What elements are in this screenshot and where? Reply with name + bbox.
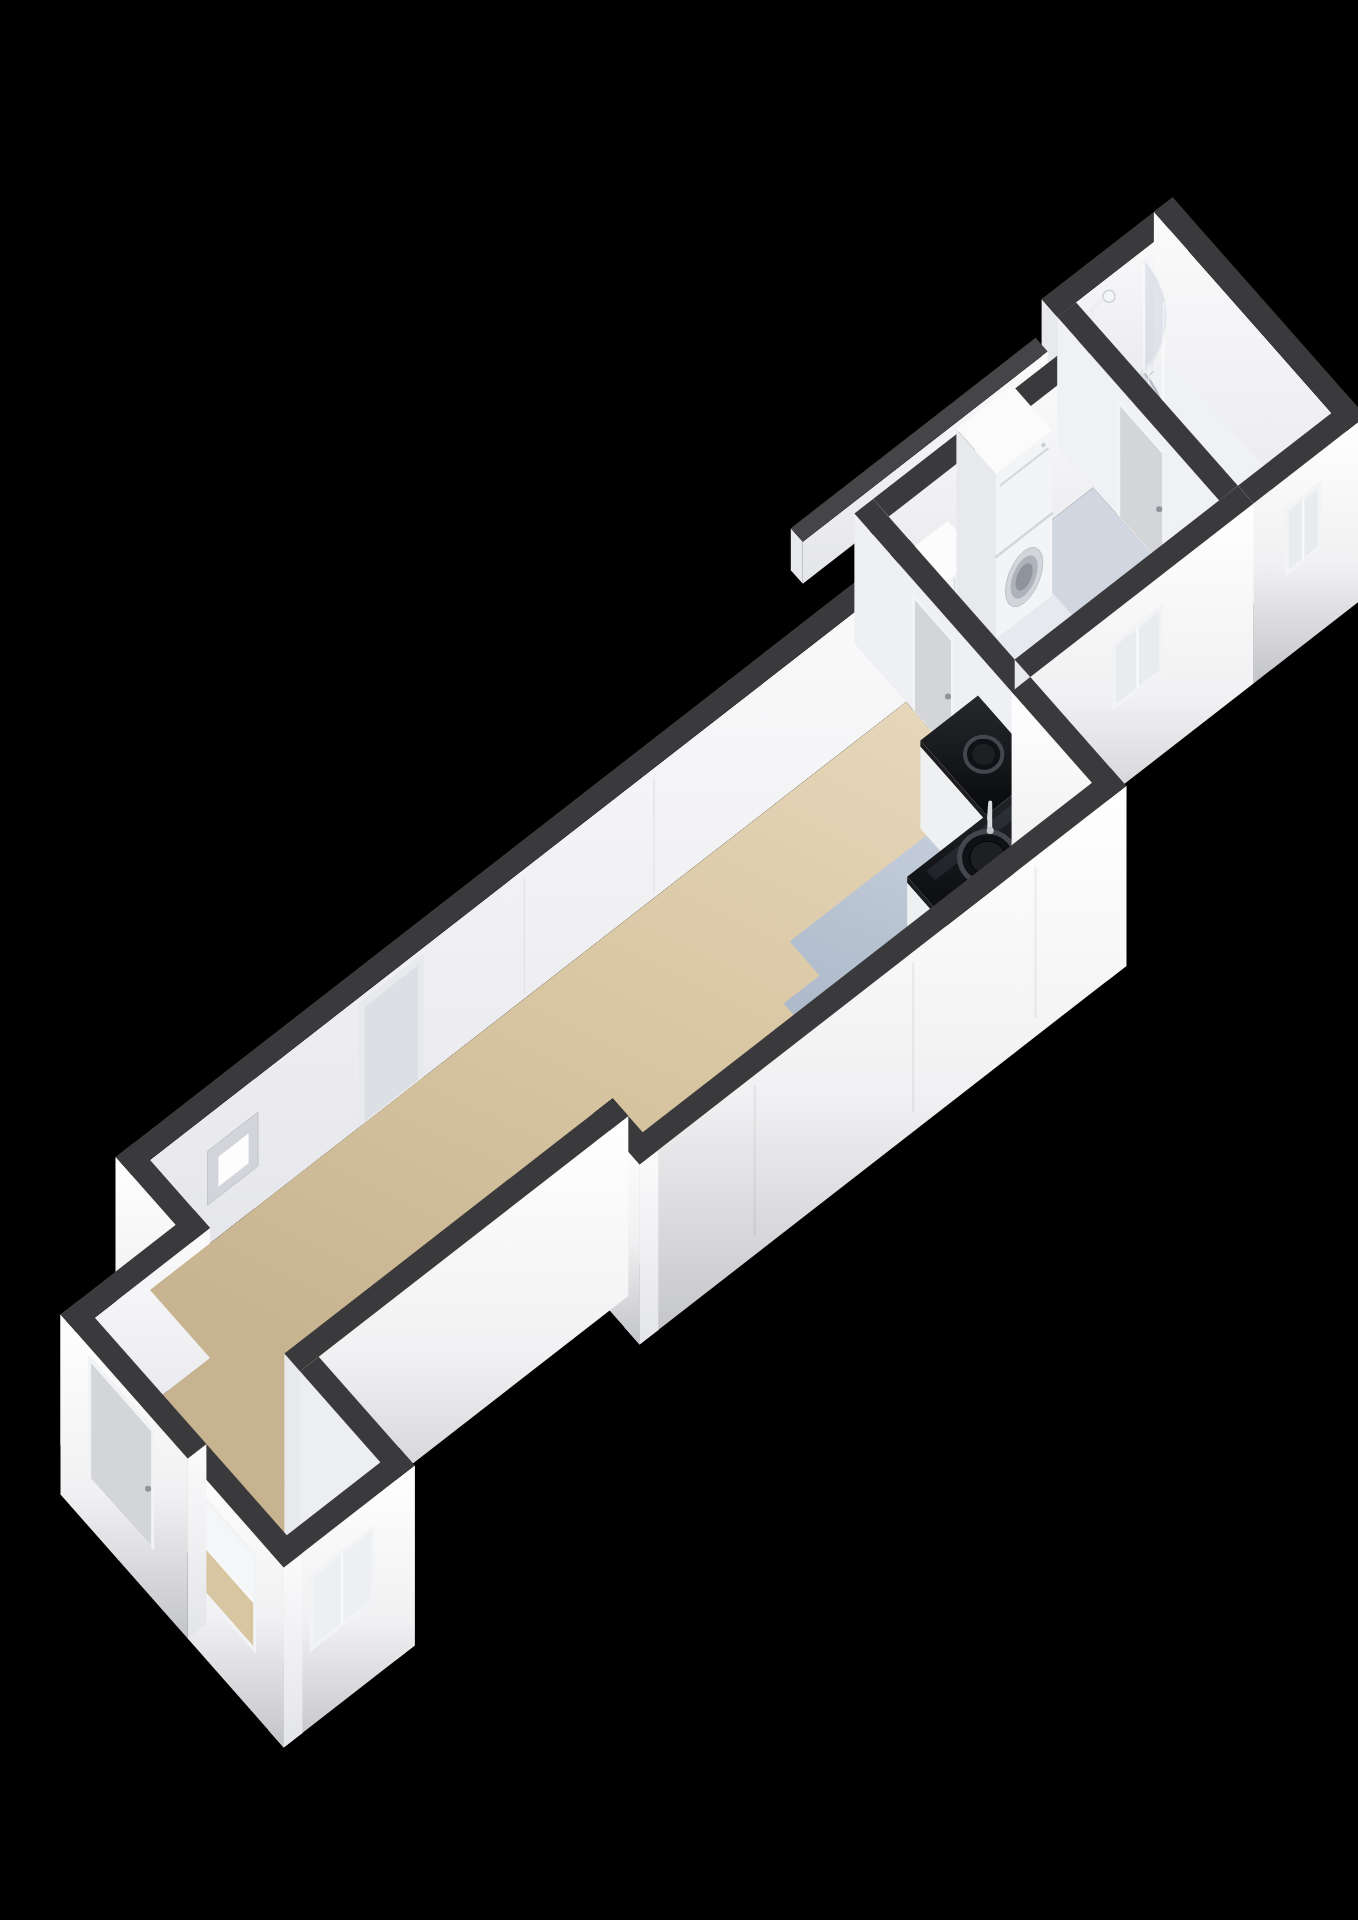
living-near-wall-jog-face bbox=[640, 1150, 659, 1345]
shower-head-disc bbox=[1103, 290, 1115, 302]
bathroom-door-handle bbox=[1156, 506, 1162, 512]
vestibule-left-wall-face bbox=[188, 1444, 207, 1639]
faucet-base bbox=[987, 827, 994, 834]
living-utility-door-handle bbox=[945, 694, 951, 700]
dryer-knob bbox=[1041, 443, 1045, 447]
bay-left-wall-face bbox=[284, 1553, 303, 1748]
kitchen-second-basin-inner bbox=[972, 744, 994, 765]
living-near-wall-left-end-face bbox=[284, 1354, 300, 1552]
washer-dryer-stack bbox=[956, 385, 1052, 639]
entrance-door-handle bbox=[145, 1486, 151, 1492]
floorplan-3d-view bbox=[0, 0, 1358, 1920]
floorplan-stage bbox=[0, 0, 1358, 1920]
